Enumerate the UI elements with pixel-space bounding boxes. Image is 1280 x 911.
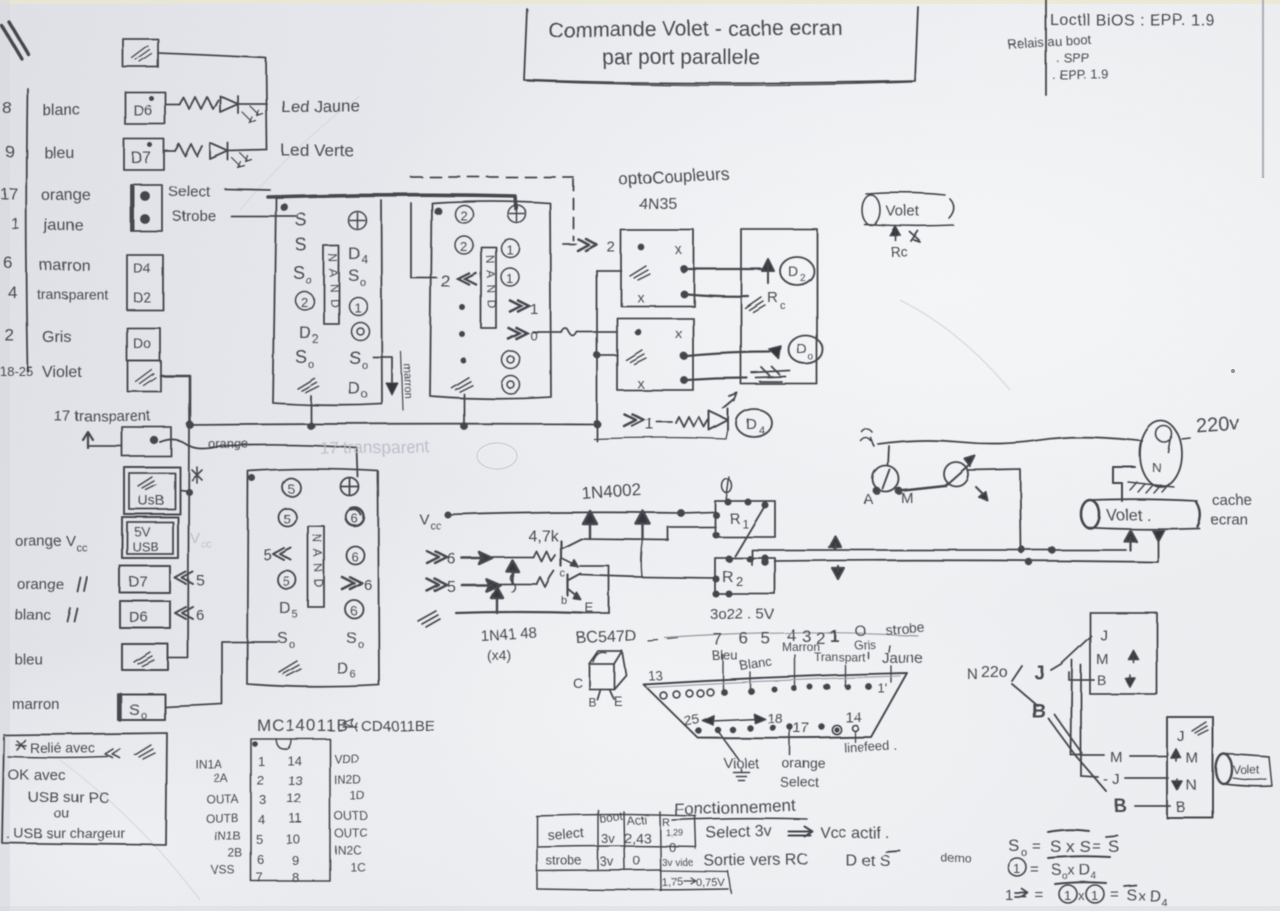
svg-text:R: R (722, 569, 734, 586)
svg-text:13: 13 (648, 668, 662, 683)
svg-text:5: 5 (256, 832, 263, 847)
svg-text:S: S (1008, 836, 1019, 855)
svg-text:14: 14 (287, 753, 301, 768)
svg-text:D: D (279, 600, 291, 617)
svg-text:22o: 22o (981, 664, 1008, 681)
svg-text:blanc: blanc (15, 607, 51, 624)
svg-text:o: o (308, 359, 314, 371)
svg-text:D: D (348, 244, 360, 263)
svg-text:S: S (349, 348, 361, 368)
svg-text:o: o (361, 387, 368, 401)
svg-text:0: 0 (633, 853, 640, 868)
svg-text:8: 8 (292, 870, 299, 885)
svg-text:bleu: bleu (15, 652, 43, 669)
svg-text:cc: cc (76, 542, 88, 554)
svg-text:(x4): (x4) (487, 647, 511, 663)
svg-text:S: S (277, 630, 288, 647)
svg-text:=: = (1110, 886, 1119, 903)
svg-text:IN1B: IN1B (214, 829, 241, 843)
svg-text:Gris: Gris (42, 329, 71, 346)
svg-text:marron: marron (39, 257, 90, 274)
svg-text:1,29: 1,29 (666, 828, 684, 838)
svg-text:3o22 . 5V: 3o22 . 5V (710, 606, 774, 623)
svg-text:Acti: Acti (626, 813, 647, 828)
svg-text:D: D (746, 416, 757, 433)
svg-text:B: B (1114, 796, 1127, 816)
svg-text:6: 6 (196, 607, 204, 624)
svg-text:ecran: ecran (1210, 511, 1248, 528)
svg-text:4: 4 (361, 252, 368, 266)
svg-text:1: 1 (1013, 861, 1020, 876)
svg-text:2: 2 (460, 239, 467, 254)
svg-text:1: 1 (1064, 888, 1071, 903)
svg-text:cache: cache (1212, 492, 1252, 509)
svg-text:strobe: strobe (885, 619, 925, 638)
svg-text:17 transparent: 17 transparent (54, 408, 152, 425)
svg-text:cc: cc (201, 539, 213, 551)
svg-text:marron: marron (12, 696, 60, 713)
svg-text:M: M (901, 490, 914, 507)
svg-text:D2: D2 (133, 289, 151, 305)
svg-text:A: A (864, 491, 874, 507)
svg-text:5: 5 (292, 609, 298, 621)
svg-text:5: 5 (761, 629, 770, 648)
svg-text:o: o (358, 639, 364, 651)
svg-text:=: = (1092, 838, 1101, 855)
svg-text:18-25: 18-25 (0, 364, 33, 379)
svg-text:OUTB: OUTB (205, 811, 238, 825)
svg-text:x: x (637, 289, 644, 305)
svg-text:2: 2 (736, 574, 743, 589)
svg-text:. SPP: . SPP (1056, 50, 1089, 65)
svg-text:S: S (293, 263, 305, 283)
svg-text:=: = (1032, 838, 1041, 855)
svg-text:Loctll BiOS : EPP. 1.9: Loctll BiOS : EPP. 1.9 (1050, 12, 1215, 29)
svg-text:orange: orange (15, 533, 62, 550)
svg-text:0,75V: 0,75V (696, 877, 725, 889)
svg-text:6: 6 (3, 253, 12, 272)
svg-text:Select: Select (168, 183, 211, 200)
svg-text:2A: 2A (213, 771, 228, 785)
svg-text:7: 7 (256, 870, 263, 885)
svg-text:J: J (1100, 627, 1108, 644)
svg-text:S: S (346, 630, 357, 647)
svg-text:6: 6 (351, 511, 358, 526)
svg-text:Relié avec: Relié avec (30, 740, 95, 756)
svg-text:2: 2 (312, 332, 319, 346)
svg-text:S: S (295, 347, 307, 367)
svg-text:x: x (1068, 862, 1075, 878)
svg-text:orange: orange (782, 755, 826, 771)
svg-text:1D: 1D (350, 789, 366, 803)
svg-text:S x S: S x S (1050, 837, 1091, 856)
svg-text:17: 17 (793, 720, 810, 737)
svg-text:D: D (788, 263, 798, 279)
svg-text:4,7k: 4,7k (528, 528, 559, 545)
svg-text:5: 5 (283, 574, 290, 589)
svg-text:x: x (1138, 887, 1145, 903)
svg-text:6: 6 (257, 852, 264, 867)
svg-text:Led Jaune: Led Jaune (281, 97, 360, 116)
svg-text:UsB: UsB (138, 492, 164, 508)
svg-text:V: V (190, 530, 200, 547)
svg-text:orange: orange (41, 187, 91, 204)
svg-text:Volet: Volet (1233, 763, 1260, 777)
svg-text:S: S (129, 702, 140, 719)
svg-text:S: S (295, 235, 307, 255)
svg-text:2: 2 (5, 326, 14, 345)
svg-text:IN1A: IN1A (195, 757, 222, 771)
svg-text:S: S (1108, 837, 1119, 856)
svg-text:jaune: jaune (43, 217, 83, 234)
svg-text:5: 5 (263, 547, 272, 564)
svg-text:M: M (1096, 651, 1109, 668)
svg-text:marron: marron (401, 364, 414, 399)
svg-text:Volet .: Volet . (1106, 507, 1150, 524)
svg-text:S: S (295, 210, 307, 230)
svg-text:R: R (767, 289, 778, 306)
svg-text:C: C (572, 674, 582, 690)
svg-text:S: S (1126, 887, 1137, 904)
svg-text:4: 4 (8, 283, 17, 302)
svg-text:0: 0 (530, 328, 537, 343)
svg-text:3v: 3v (600, 854, 614, 869)
svg-text:- J: - J (1103, 771, 1120, 788)
svg-text:B: B (1176, 799, 1186, 816)
svg-text:4: 4 (258, 812, 265, 827)
svg-text:2: 2 (607, 239, 615, 256)
svg-text:x: x (675, 325, 682, 341)
svg-text:c: c (560, 568, 566, 580)
svg-text:. EPP. 1.9: . EPP. 1.9 (1052, 67, 1109, 82)
svg-text:2,43: 2,43 (624, 830, 651, 846)
svg-text:D: D (797, 341, 807, 357)
svg-text:cc: cc (430, 520, 442, 532)
svg-text:Sortie vers RC: Sortie vers RC (704, 851, 808, 870)
svg-text:1: 1 (258, 754, 265, 769)
svg-text:2: 2 (257, 773, 264, 788)
svg-text:o: o (1021, 847, 1027, 859)
svg-text:o: o (362, 360, 368, 372)
svg-text:D7: D7 (129, 574, 148, 591)
svg-text:1: 1 (1005, 887, 1013, 904)
svg-text:Select 3v: Select 3v (706, 823, 772, 842)
svg-text:Do: Do (133, 335, 151, 351)
svg-text:4: 4 (759, 425, 765, 437)
svg-text:M: M (1186, 750, 1199, 767)
svg-text:linefeed .: linefeed . (843, 737, 896, 755)
svg-text:BC547D: BC547D (576, 628, 637, 647)
svg-text:NAND: NAND (326, 254, 342, 314)
svg-text:CD4011BE: CD4011BE (361, 718, 435, 735)
svg-text:transparent: transparent (37, 286, 108, 302)
svg-text:orange: orange (17, 576, 64, 593)
svg-text:11: 11 (289, 811, 303, 826)
svg-text:ou: ou (54, 805, 70, 821)
svg-text:18: 18 (767, 710, 783, 726)
svg-text:1: 1 (506, 271, 513, 286)
svg-text:2: 2 (800, 273, 806, 284)
svg-text:0: 0 (669, 840, 676, 855)
svg-text:o: o (141, 710, 147, 722)
svg-text:D6: D6 (133, 102, 152, 119)
svg-text:5: 5 (196, 572, 204, 589)
svg-text:E: E (613, 693, 622, 708)
svg-text:x: x (1078, 888, 1085, 903)
svg-text:o: o (360, 277, 366, 289)
svg-text:OUTA: OUTA (206, 792, 238, 806)
svg-text:D: D (1079, 862, 1091, 879)
svg-text:6: 6 (447, 551, 456, 568)
svg-text:1: 1 (506, 242, 513, 257)
svg-text:B: B (1097, 672, 1106, 688)
svg-text:5: 5 (283, 511, 290, 526)
svg-text:3v vide: 3v vide (662, 858, 694, 869)
svg-text:o: o (289, 639, 295, 651)
svg-text:J: J (1177, 728, 1185, 745)
svg-text:4: 4 (1161, 897, 1167, 909)
svg-text:select: select (547, 824, 585, 843)
svg-text:Violet: Violet (42, 364, 82, 381)
svg-text:R: R (729, 510, 740, 527)
svg-text:6: 6 (350, 669, 356, 681)
svg-text:S: S (348, 266, 359, 285)
svg-text:2: 2 (441, 272, 450, 291)
svg-text:2B: 2B (228, 846, 243, 860)
svg-text:USB sur PC: USB sur PC (28, 789, 109, 806)
svg-text:USB: USB (132, 539, 159, 554)
svg-text:1,75: 1,75 (662, 876, 684, 889)
svg-text:VDD: VDD (334, 752, 360, 766)
svg-text:6: 6 (364, 577, 372, 594)
svg-text:V: V (66, 533, 76, 550)
svg-text:17: 17 (0, 186, 18, 203)
svg-text:17 transparent: 17 transparent (320, 437, 430, 458)
svg-text:Commande Volet - cache ecran: Commande Volet - cache ecran (548, 16, 842, 42)
svg-text:OUTC: OUTC (334, 826, 368, 840)
svg-text:D: D (337, 661, 349, 678)
svg-text:VSS: VSS (211, 863, 235, 877)
svg-text:8: 8 (2, 98, 11, 117)
svg-text:3v: 3v (601, 831, 615, 846)
svg-text:strobe: strobe (546, 853, 582, 868)
svg-text:1C: 1C (350, 860, 366, 874)
svg-text:c: c (780, 300, 786, 312)
svg-text:B: B (588, 695, 596, 709)
svg-text:=: = (1035, 887, 1044, 904)
svg-text:N: N (1152, 460, 1161, 475)
svg-text:=: = (1030, 861, 1039, 878)
svg-text:D et S: D et S (846, 853, 890, 870)
svg-text:2: 2 (460, 208, 467, 223)
svg-text:9: 9 (292, 853, 299, 868)
svg-text:1: 1 (645, 416, 654, 433)
svg-text:D: D (299, 323, 311, 342)
svg-text:demo: demo (941, 851, 971, 865)
svg-text:V: V (419, 511, 429, 528)
svg-text:1: 1 (11, 216, 20, 233)
svg-text:D: D (1149, 888, 1161, 905)
svg-text:10: 10 (286, 832, 300, 847)
svg-text:par port parallele: par port parallele (602, 46, 760, 69)
svg-text:N: N (967, 666, 978, 683)
svg-text:4: 4 (1091, 871, 1097, 882)
svg-text:D: D (348, 379, 360, 398)
svg-text:220v: 220v (1195, 412, 1240, 437)
svg-text:14: 14 (845, 709, 862, 726)
svg-text:OUTD: OUTD (334, 809, 368, 823)
svg-text:1: 1 (830, 627, 839, 646)
svg-text:NAND: NAND (310, 534, 326, 594)
svg-text:Strobe: Strobe (172, 208, 216, 225)
svg-text:1': 1' (877, 680, 887, 695)
svg-text:x: x (675, 241, 682, 257)
svg-text:M: M (1110, 749, 1123, 766)
svg-text:IN2D: IN2D (334, 773, 362, 787)
svg-text:x: x (637, 375, 644, 391)
svg-text:Bleu: Bleu (712, 648, 738, 663)
svg-text:2: 2 (301, 295, 308, 310)
svg-text:6: 6 (739, 629, 748, 648)
svg-text:. USB sur chargeur: . USB sur chargeur (6, 825, 125, 841)
svg-text:IN2C: IN2C (334, 843, 362, 857)
svg-text:b: b (561, 595, 567, 607)
svg-text:OK avec: OK avec (8, 767, 66, 784)
svg-text:Led Verte: Led Verte (281, 141, 354, 160)
svg-text:25: 25 (683, 710, 701, 728)
svg-text:D7: D7 (131, 150, 152, 167)
svg-text:7: 7 (713, 630, 722, 649)
svg-text:D6: D6 (129, 609, 148, 626)
svg-text:13: 13 (288, 773, 302, 788)
svg-text:blanc: blanc (42, 102, 80, 119)
svg-text:Jaune: Jaune (882, 650, 923, 667)
svg-text:bleu: bleu (44, 145, 74, 162)
svg-text:6: 6 (351, 549, 358, 564)
svg-text:4N35: 4N35 (639, 196, 677, 213)
svg-text:1: 1 (354, 300, 361, 315)
svg-text:S: S (1051, 862, 1062, 879)
svg-text:9: 9 (5, 142, 14, 161)
svg-text:Transpart: Transpart (814, 650, 866, 664)
svg-text:o: o (306, 275, 312, 287)
svg-text:1N41 48: 1N41 48 (480, 625, 538, 645)
svg-text:5: 5 (287, 481, 294, 496)
svg-text:12: 12 (287, 791, 301, 806)
svg-text:Volet: Volet (886, 203, 920, 220)
svg-text:D4: D4 (133, 260, 151, 276)
svg-text:Rc: Rc (890, 243, 907, 259)
svg-text:1: 1 (530, 301, 538, 318)
svg-text:5V: 5V (134, 524, 150, 539)
svg-text:Vcc actif .: Vcc actif . (820, 825, 889, 842)
svg-text:1: 1 (742, 517, 749, 531)
svg-text:6: 6 (350, 603, 357, 618)
svg-text:J: J (1034, 663, 1045, 684)
svg-text:o: o (808, 352, 814, 363)
svg-text:Gris: Gris (854, 638, 876, 652)
svg-text:NAND: NAND (483, 255, 499, 315)
svg-text:orange: orange (208, 436, 248, 451)
svg-text:MC14011B: MC14011B (257, 716, 349, 735)
svg-text:Select: Select (780, 774, 819, 790)
svg-text:B: B (1031, 700, 1045, 722)
svg-text:N: N (1186, 777, 1197, 794)
svg-text:1: 1 (1091, 888, 1098, 903)
svg-text:5: 5 (447, 579, 456, 596)
svg-text:3: 3 (259, 792, 266, 807)
